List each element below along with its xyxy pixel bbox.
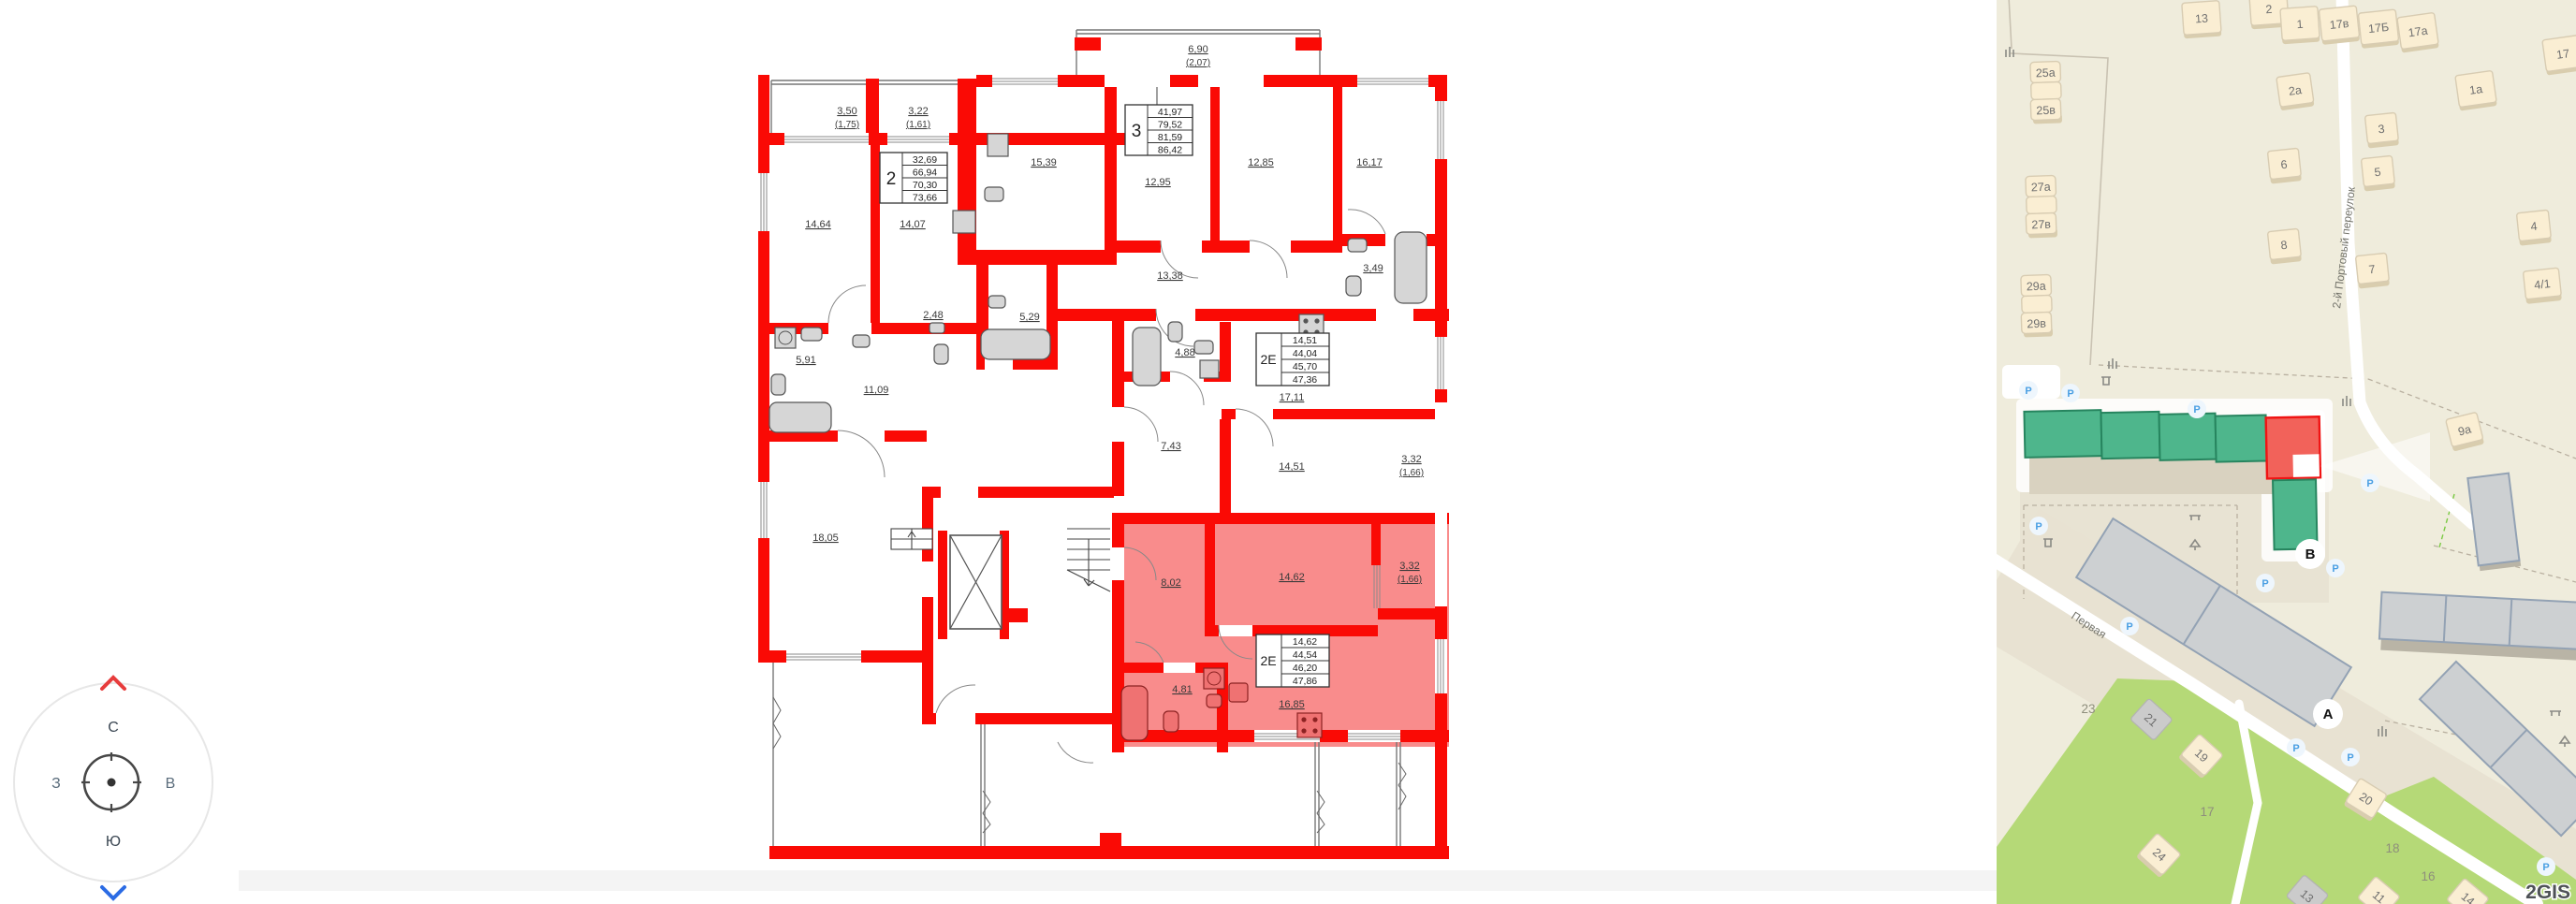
room-label: 18,05 <box>812 532 839 544</box>
area-value: 70,30 <box>913 180 937 191</box>
svg-text:4/1: 4/1 <box>2534 277 2552 292</box>
building-section-green[interactable] <box>2024 410 2101 458</box>
room-label: 2,48 <box>923 310 943 321</box>
room-label: 11,09 <box>864 385 889 396</box>
svg-text:13: 13 <box>2195 12 2209 26</box>
room-label-sub: (2,07) <box>1186 58 1210 68</box>
map-provider-logo[interactable]: 2GIS <box>2525 882 2570 903</box>
area-value: 45,70 <box>1293 361 1317 372</box>
svg-text:2: 2 <box>2265 3 2273 16</box>
svg-text:29а: 29а <box>2027 280 2046 294</box>
svg-text:23: 23 <box>2081 702 2095 716</box>
apartment-type: 3 <box>1132 122 1142 141</box>
area-value: 47,36 <box>1293 374 1317 386</box>
screenshot-root: С В Ю З <box>0 0 2576 904</box>
room-label-sub: (1,66) <box>1398 575 1422 585</box>
area-value: 14,51 <box>1293 335 1317 346</box>
compass-north-label: С <box>108 720 119 736</box>
room-label-sub: (1,61) <box>906 120 930 130</box>
svg-text:17: 17 <box>2200 805 2214 819</box>
room-label: 14,64 <box>805 219 831 230</box>
svg-text:P: P <box>2542 862 2549 873</box>
room-label: 3,50 <box>837 106 856 117</box>
room-label: 17,11 <box>1280 392 1305 403</box>
room-label: 5,91 <box>796 355 815 366</box>
svg-text:17в: 17в <box>2329 17 2349 32</box>
room-label: 3,49 <box>1363 263 1383 274</box>
room-label: 3,22 <box>908 106 928 117</box>
svg-text:17а: 17а <box>2408 24 2429 40</box>
apartment-2e-selected-table: 2Е 14,62 44,54 46,20 47,86 <box>1256 634 1329 687</box>
section-notch <box>2292 454 2319 477</box>
entrance-marker-a[interactable]: А <box>2313 699 2343 729</box>
svg-text:18: 18 <box>2385 841 2399 855</box>
apartment-2e-selected-hotspot[interactable] <box>1112 513 1449 752</box>
svg-text:25в: 25в <box>2036 104 2056 118</box>
room-label: 4,88 <box>1175 347 1194 358</box>
svg-text:1а: 1а <box>2468 82 2483 97</box>
room-label: 7,43 <box>1161 441 1180 452</box>
svg-text:P: P <box>2067 388 2073 400</box>
svg-text:P: P <box>2035 521 2042 532</box>
building-section-green[interactable] <box>2100 412 2159 459</box>
area-value: 32,69 <box>913 154 937 166</box>
apartment-3-table: 3 41,97 79,52 81,59 86,42 <box>1125 105 1193 156</box>
room-label: 16,17 <box>1356 157 1383 168</box>
svg-text:P: P <box>2366 478 2373 489</box>
gray-building-row <box>2378 592 2576 661</box>
building-section-green[interactable] <box>2216 415 2267 461</box>
svg-text:17: 17 <box>2555 47 2570 62</box>
area-value: 14,62 <box>1293 636 1317 648</box>
svg-text:1: 1 <box>2296 18 2304 31</box>
room-label: 14,62 <box>1279 572 1305 583</box>
room-label: 5,29 <box>1019 312 1039 323</box>
room-label: 8,02 <box>1161 577 1180 589</box>
svg-text:P: P <box>2193 404 2200 416</box>
building-section-green[interactable] <box>2159 414 2217 460</box>
compass-south-arrow-icon[interactable] <box>102 887 124 898</box>
entrance-marker-b[interactable]: В <box>2295 539 2325 569</box>
map[interactable]: 13 2 1 17в 17Б 17а 17 1а 2а 3 5 6 7 8 4 … <box>1997 0 2576 904</box>
room-label: 12,85 <box>1248 157 1274 168</box>
svg-text:P: P <box>2126 621 2132 633</box>
svg-text:27в: 27в <box>2031 218 2051 232</box>
room-label: 14,07 <box>900 219 926 230</box>
room-label: 16,85 <box>1279 699 1305 710</box>
room-label-sub: (1,66) <box>1399 468 1424 478</box>
room-label: 6,90 <box>1188 44 1207 55</box>
area-value: 79,52 <box>1158 120 1182 131</box>
apartment-2e-top-table: 2Е 14,51 44,04 45,70 47,36 <box>1256 333 1329 386</box>
room-label: 3,32 <box>1401 454 1421 465</box>
svg-text:P: P <box>2025 386 2031 397</box>
apartment-type: 2Е <box>1260 352 1276 367</box>
area-value: 46,20 <box>1293 663 1317 674</box>
room-label-sub: (1,75) <box>835 120 859 130</box>
svg-text:В: В <box>2305 547 2316 562</box>
apartment-2-table: 2 32,69 66,94 70,30 73,66 <box>880 153 947 204</box>
apartment-type: 2 <box>886 169 897 189</box>
room-label: 3,32 <box>1399 561 1419 572</box>
svg-text:25а: 25а <box>2036 66 2056 80</box>
room-label: 12,95 <box>1145 177 1171 188</box>
room-label: 14,51 <box>1279 461 1305 473</box>
elevator-shaft <box>950 535 1002 629</box>
svg-text:P: P <box>2261 578 2268 590</box>
compass-west-label: З <box>51 776 61 792</box>
area-value: 86,42 <box>1158 145 1182 156</box>
compass-south-label: Ю <box>106 834 121 850</box>
svg-text:2а: 2а <box>2288 83 2303 98</box>
apartment-2-hotspot[interactable] <box>758 79 976 331</box>
area-value: 44,04 <box>1293 348 1317 359</box>
room-label: 13,38 <box>1157 270 1183 282</box>
compass[interactable]: С В Ю З <box>7 666 219 902</box>
svg-text:29в: 29в <box>2027 317 2046 331</box>
svg-text:27а: 27а <box>2031 181 2051 195</box>
svg-text:P: P <box>2292 743 2299 754</box>
area-value: 41,97 <box>1158 107 1182 118</box>
area-value: 81,59 <box>1158 132 1182 143</box>
compass-east-label: В <box>166 776 176 792</box>
area-value: 44,54 <box>1293 649 1317 661</box>
room-label: 4,81 <box>1172 684 1192 695</box>
svg-text:P: P <box>2332 563 2338 575</box>
room-label: 15,39 <box>1031 157 1057 168</box>
area-value: 73,66 <box>913 193 937 204</box>
svg-text:17Б: 17Б <box>2367 21 2389 36</box>
svg-text:А: А <box>2323 707 2334 722</box>
svg-text:P: P <box>2347 752 2353 764</box>
svg-text:16: 16 <box>2421 869 2435 883</box>
apartment-type: 2Е <box>1260 653 1276 668</box>
area-value: 47,86 <box>1293 676 1317 687</box>
area-value: 66,94 <box>913 168 937 179</box>
floor-plan[interactable]: 3,50 (1,75) 3,22 (1,61) 14,64 14,07 15,3… <box>739 9 1460 898</box>
